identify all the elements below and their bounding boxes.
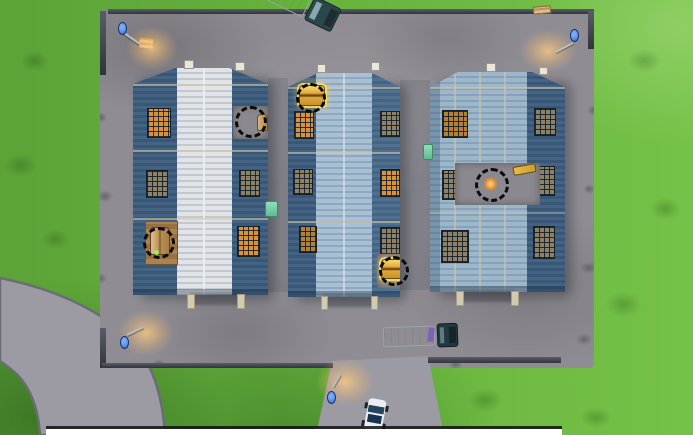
chest-marker-middle-warehouse-bottom xyxy=(379,256,409,286)
page-background-strip xyxy=(46,429,562,435)
chest-marker-left-warehouse-bottom xyxy=(143,227,175,259)
chest-marker-left-warehouse-top xyxy=(235,106,267,138)
chest-marker-middle-warehouse-top xyxy=(296,83,326,113)
chest-marker-right-warehouse-center xyxy=(475,168,509,202)
map-screenshot xyxy=(0,0,693,435)
markers-layer xyxy=(0,0,693,435)
